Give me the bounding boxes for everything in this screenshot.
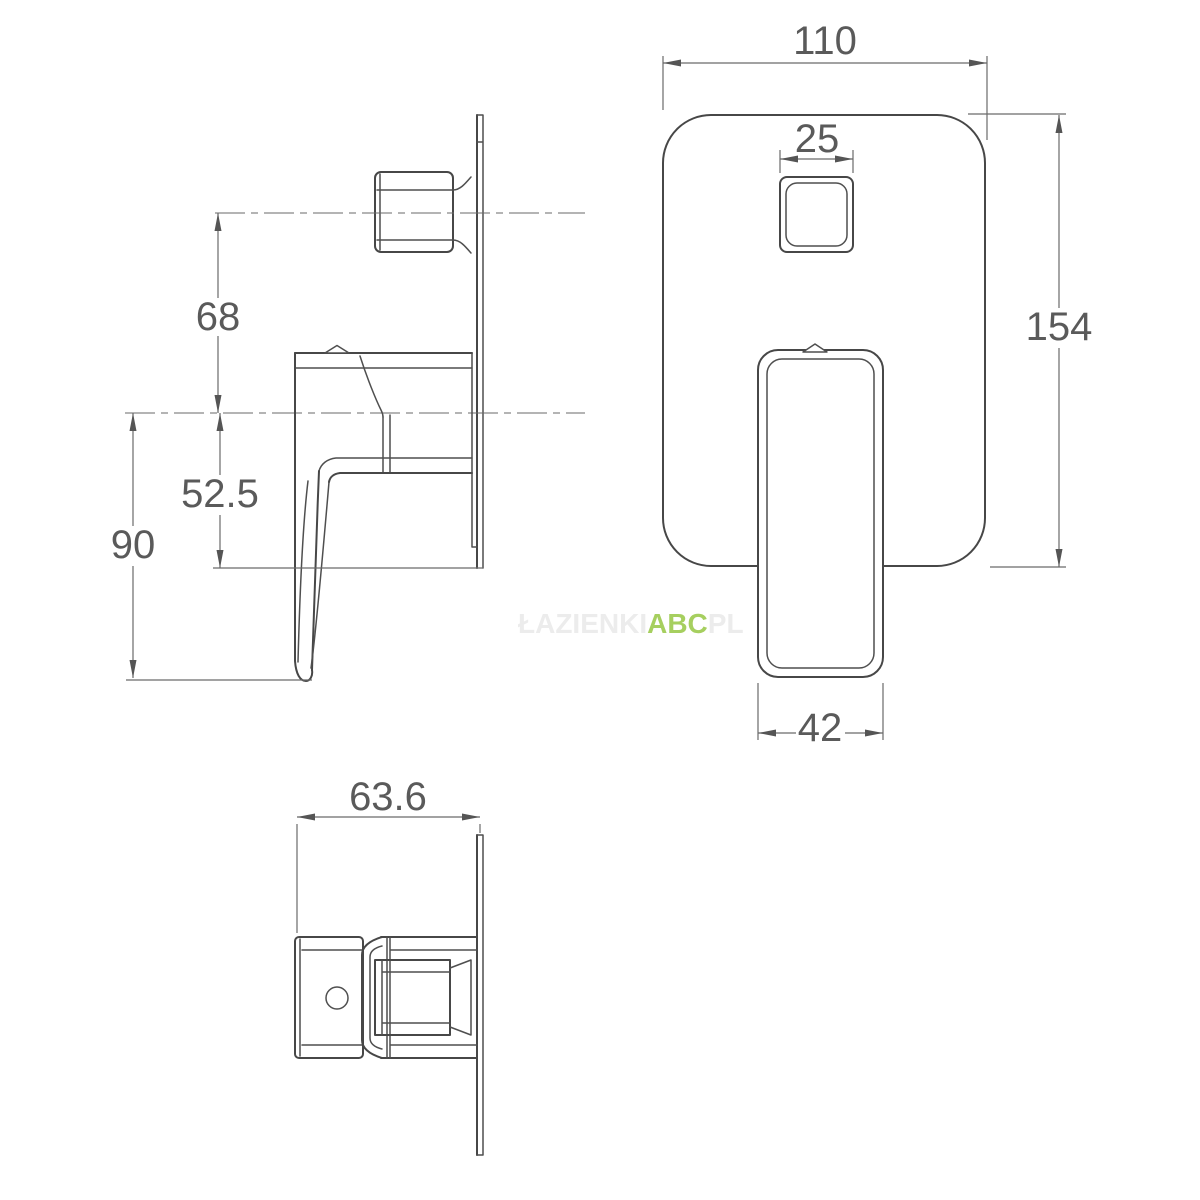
dimension-axis-to-plate-bottom: 52.5 <box>181 413 259 568</box>
diverter-button-outer <box>780 177 853 252</box>
dimension-text: 42 <box>798 706 843 750</box>
dimension-axis-to-handle-tip: 90 <box>111 413 156 678</box>
clip-outer <box>362 937 382 1058</box>
lever-neck-lines <box>383 415 390 473</box>
handle-whiteout <box>757 347 884 680</box>
hub-detail <box>387 937 477 1058</box>
drawing-svg: 110 25 154 42 <box>0 0 1200 1200</box>
lever-front-chamfer <box>298 481 308 662</box>
lever-bottom-outline <box>295 937 363 1058</box>
diverter-knob-detail <box>377 174 453 250</box>
lever-front-edge <box>295 353 312 681</box>
extension-lines <box>297 824 480 933</box>
dimension-plate-height: 154 <box>968 114 1092 567</box>
dimension-handle-width: 42 <box>758 683 883 750</box>
dimension-text: 68 <box>196 295 241 339</box>
dimension-text: 90 <box>111 523 156 567</box>
hub-outline <box>381 937 477 1058</box>
stem-detail <box>382 960 450 1035</box>
stem-neck <box>450 960 471 1035</box>
knob-neck <box>453 177 471 253</box>
dimension-text: 154 <box>1026 305 1093 349</box>
lever-pivot-line <box>360 356 383 417</box>
dimension-depth: 63.6 <box>297 775 480 933</box>
diverter-button-inner <box>786 183 847 246</box>
lever-back-chamfer <box>311 482 329 668</box>
side-view: 68 52.5 90 <box>111 115 585 681</box>
body-bottom-edge <box>329 473 472 482</box>
lever-bottom-detail <box>300 939 363 1056</box>
screw-hole <box>326 987 348 1009</box>
dimension-text: 52.5 <box>181 472 259 516</box>
dimension-text: 25 <box>795 117 840 161</box>
body-bottom-chamfer <box>319 458 472 471</box>
dimension-knob-axis-offset: 68 <box>196 213 241 413</box>
technical-drawing-canvas: ŁAZIENKIABCPL 110 <box>0 0 1200 1200</box>
dimension-button-width: 25 <box>780 117 853 173</box>
front-view: 110 25 154 42 <box>663 19 1092 750</box>
lever-back-edge <box>312 471 319 670</box>
bottom-view: 63.6 <box>295 775 483 1155</box>
dimension-text: 110 <box>793 19 857 63</box>
body-top-notch <box>325 346 349 354</box>
dimension-text: 63.6 <box>349 775 427 819</box>
